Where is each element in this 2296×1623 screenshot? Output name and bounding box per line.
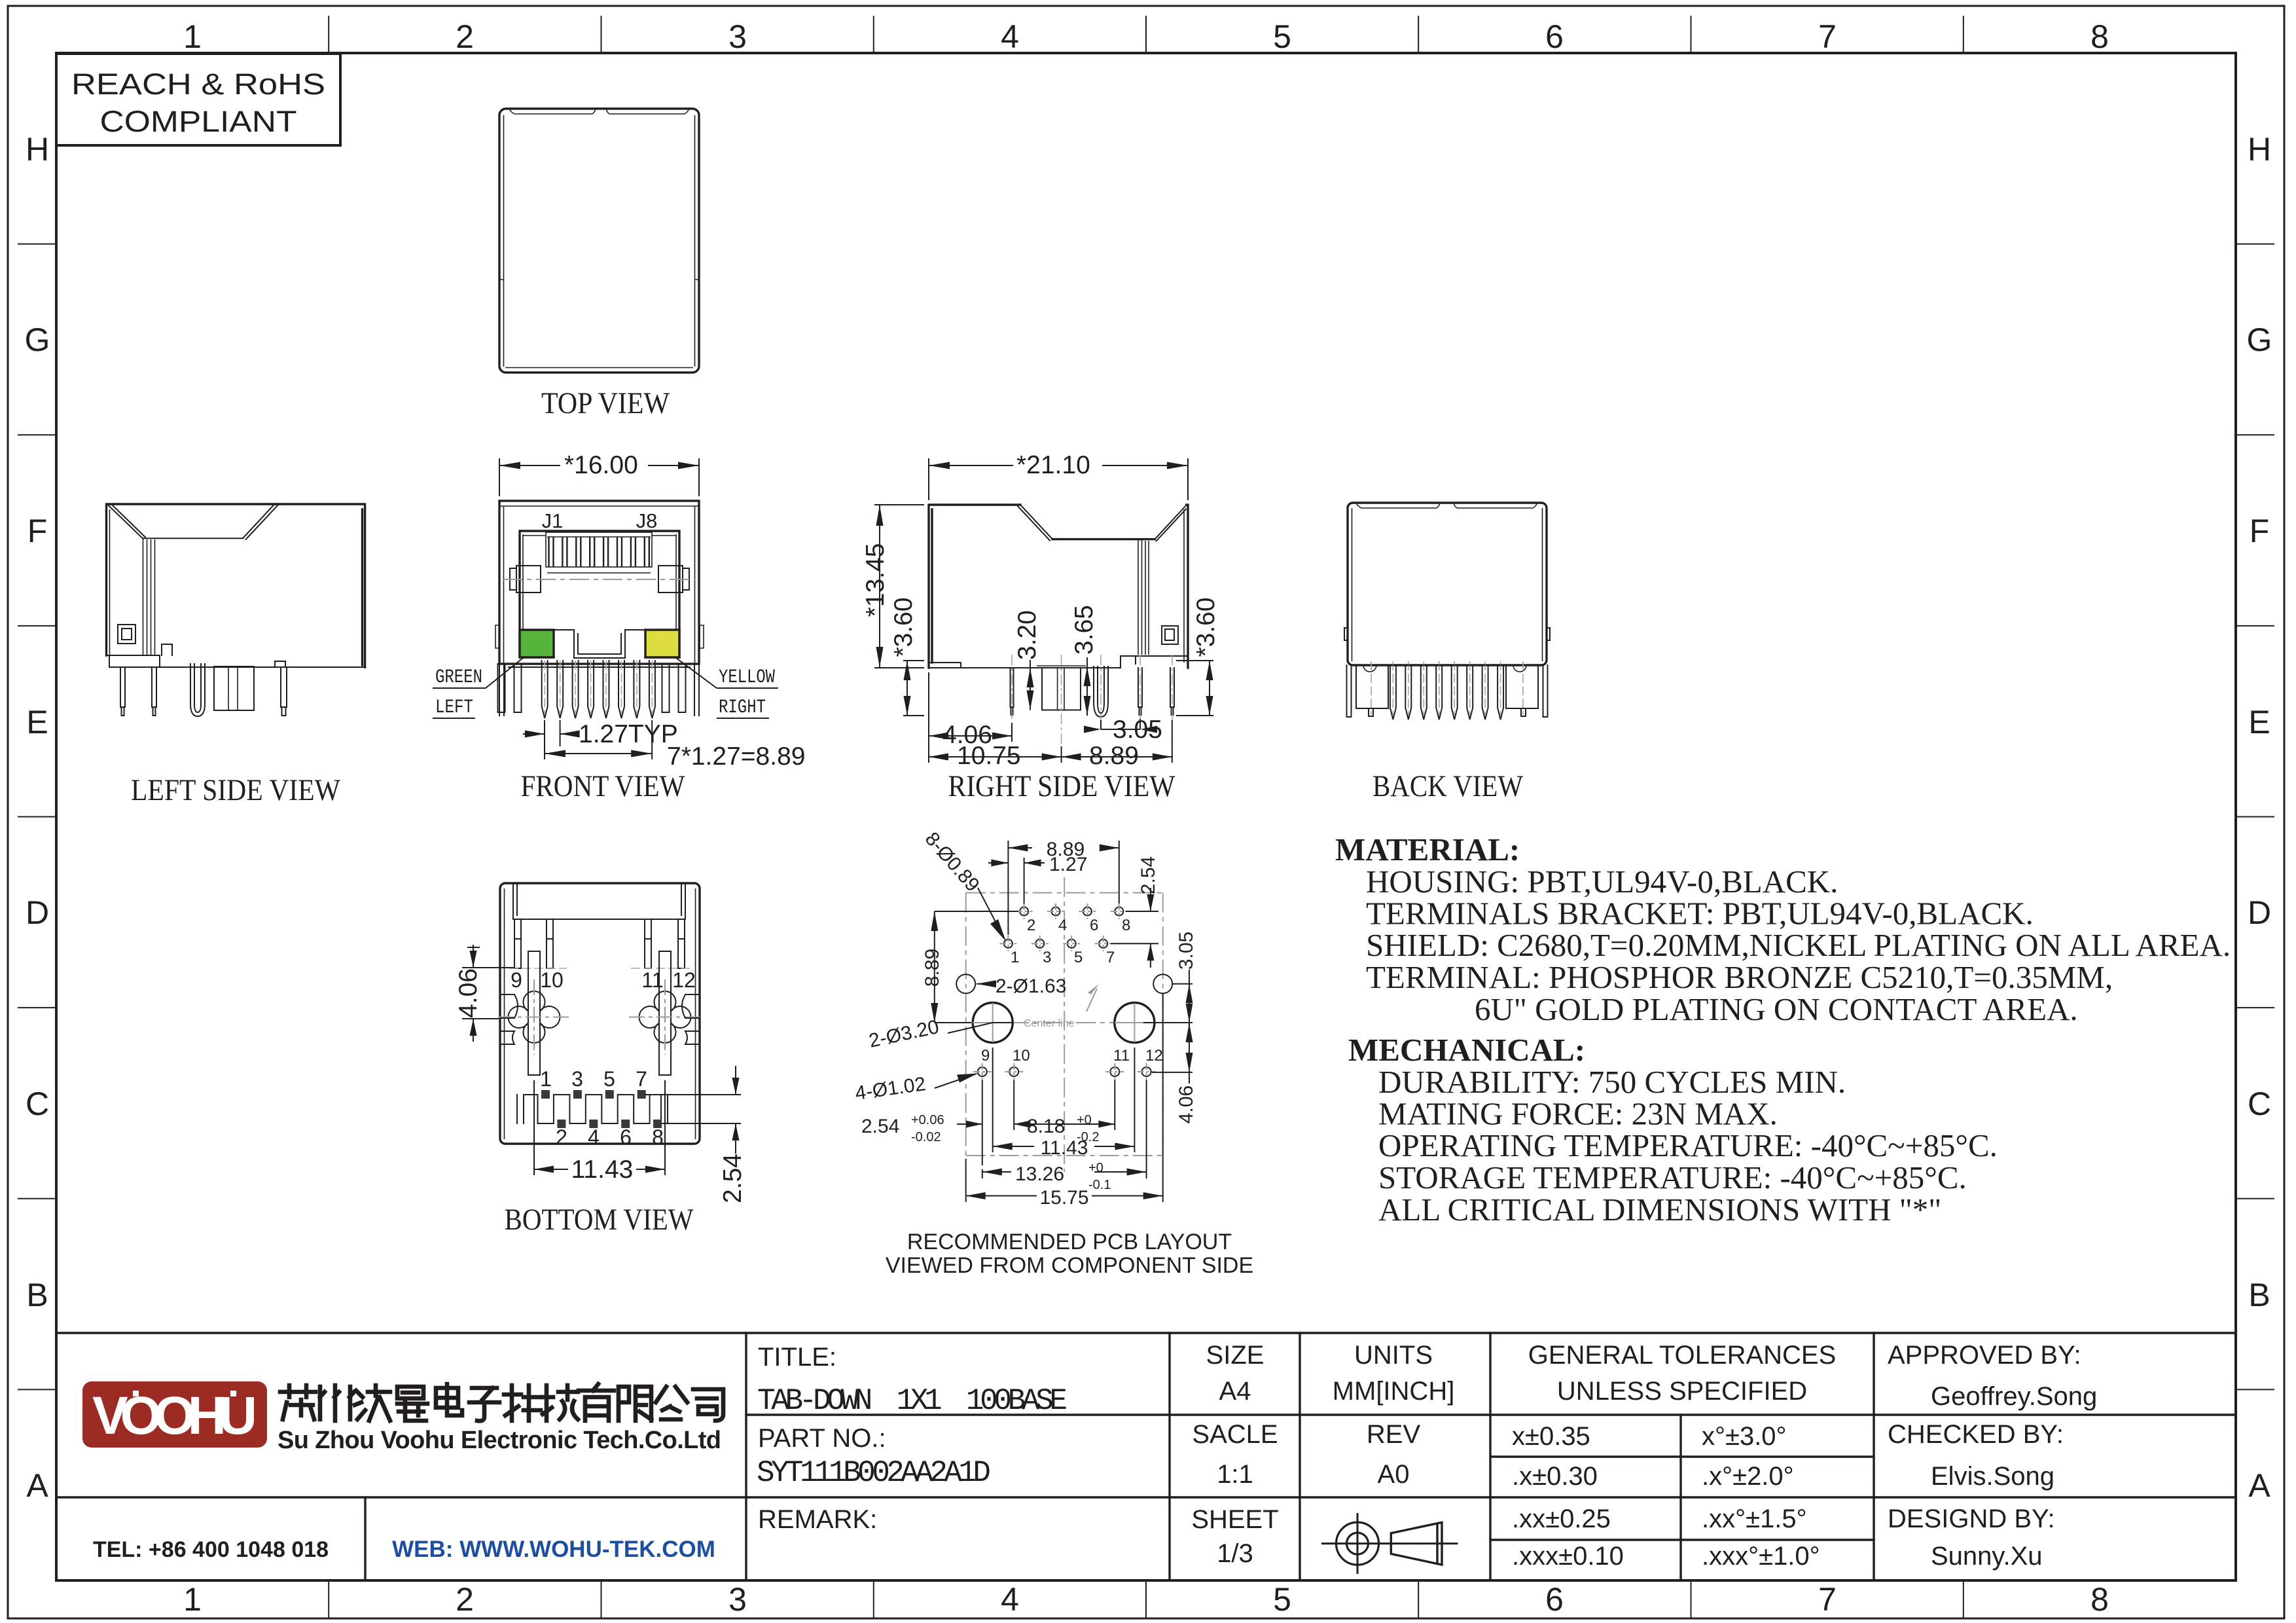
svg-text:3: 3 [728,18,747,55]
svg-text:*13.45: *13.45 [861,543,889,617]
svg-text:11.43: 11.43 [1041,1137,1088,1159]
svg-text:SYT111B002AA2A1D: SYT111B002AA2A1D [757,1456,991,1490]
svg-text:G: G [25,321,50,358]
svg-text:1: 1 [183,18,202,55]
svg-text:UNITS: UNITS [1354,1341,1433,1370]
svg-text:3.05: 3.05 [1113,716,1162,744]
svg-text:10: 10 [540,968,564,992]
svg-text:REV: REV [1367,1420,1421,1449]
svg-text:x°±3.0°: x°±3.0° [1702,1422,1787,1451]
svg-text:1: 1 [183,1581,202,1618]
svg-text:H: H [2248,131,2271,168]
svg-text:2: 2 [556,1125,567,1149]
svg-text:8: 8 [652,1125,664,1149]
svg-text:Su Zhou Voohu Electronic Tech.: Su Zhou Voohu Electronic Tech.Co.Ltd [278,1427,721,1454]
svg-text:9: 9 [511,968,522,992]
svg-text:A4: A4 [1219,1377,1251,1406]
svg-text:BOTTOM VIEW: BOTTOM VIEW [505,1203,694,1237]
svg-text:D: D [2248,894,2271,931]
svg-text:8.89: 8.89 [1089,742,1139,770]
svg-text:.xx°±1.5°: .xx°±1.5° [1702,1504,1807,1533]
svg-text:A: A [2248,1467,2270,1504]
svg-text:12: 12 [1145,1047,1163,1065]
svg-text:H: H [26,131,49,168]
svg-text:J8: J8 [636,509,658,532]
svg-text:2-Ø1.63: 2-Ø1.63 [996,976,1066,997]
svg-text:RIGHT SIDE VIEW: RIGHT SIDE VIEW [948,769,1176,803]
svg-text:4: 4 [1001,18,1019,55]
svg-text:10: 10 [1013,1047,1030,1065]
svg-text:VIEWED FROM COMPONENT SIDE: VIEWED FROM COMPONENT SIDE [886,1253,1253,1278]
svg-text:UNLESS SPECIFIED: UNLESS SPECIFIED [1557,1377,1807,1406]
svg-text:E: E [2248,704,2270,740]
svg-text:5: 5 [1074,949,1083,966]
svg-text:9: 9 [981,1047,990,1065]
svg-text:2.54: 2.54 [861,1116,899,1137]
svg-text:Geoffrey.Song: Geoffrey.Song [1931,1382,2097,1411]
svg-text:C: C [2248,1085,2271,1122]
svg-text:1: 1 [1011,949,1019,966]
svg-text:5: 5 [1273,1581,1291,1618]
svg-text:13.26: 13.26 [1015,1163,1064,1185]
svg-text:1.27TYP: 1.27TYP [579,720,678,748]
svg-text:MM[INCH]: MM[INCH] [1333,1377,1455,1406]
svg-text:6U" GOLD PLATING ON CONTACT AR: 6U" GOLD PLATING ON CONTACT AREA. [1475,991,2078,1027]
svg-text:5: 5 [603,1067,615,1091]
svg-text:1: 1 [540,1067,552,1091]
svg-text:COMPLIANT: COMPLIANT [100,105,297,138]
svg-text:Sunny.Xu: Sunny.Xu [1931,1542,2043,1571]
svg-text:G: G [2247,321,2272,358]
svg-text:-0.1: -0.1 [1088,1178,1111,1192]
svg-text:J1: J1 [542,509,564,532]
svg-text:TOP VIEW: TOP VIEW [541,386,670,420]
svg-text:TEL: +86 400 1048 018: TEL: +86 400 1048 018 [93,1537,329,1562]
svg-text:6: 6 [620,1125,632,1149]
svg-text:WEB: WWW.WOHU-TEK.COM: WEB: WWW.WOHU-TEK.COM [392,1537,715,1562]
svg-text:7: 7 [1106,949,1115,966]
svg-text:7: 7 [1818,18,1837,55]
svg-text:3.05: 3.05 [1175,932,1197,970]
svg-text:2.54: 2.54 [719,1154,747,1203]
svg-text:2: 2 [456,1581,474,1618]
svg-text:.xxx±0.10: .xxx±0.10 [1512,1542,1624,1571]
svg-text:7*1.27=8.89: 7*1.27=8.89 [667,742,805,771]
svg-text:5: 5 [1273,18,1291,55]
svg-text:4: 4 [588,1125,600,1149]
svg-text:4.06: 4.06 [1175,1085,1197,1123]
svg-text:.xx±0.25: .xx±0.25 [1512,1504,1611,1533]
svg-text:*16.00: *16.00 [564,451,638,479]
svg-text:TAB-DOWN 1X1 100BASE: TAB-DOWN 1X1 100BASE [757,1384,1067,1418]
svg-text:.x±0.30: .x±0.30 [1512,1462,1598,1491]
svg-text:11.43: 11.43 [571,1156,634,1184]
svg-text:ALL CRITICAL DIMENSIONS WITH ": ALL CRITICAL DIMENSIONS WITH "*" [1378,1192,1941,1228]
svg-text:2.54: 2.54 [1138,856,1159,894]
svg-text:D: D [26,894,49,931]
svg-text:8.89: 8.89 [922,949,943,987]
svg-text:CHECKED BY:: CHECKED BY: [1888,1420,2064,1449]
svg-text:FRONT VIEW: FRONT VIEW [521,769,686,803]
svg-text:MECHANICAL:: MECHANICAL: [1348,1032,1585,1068]
svg-text:DURABILITY: 750 CYCLES MIN.: DURABILITY: 750 CYCLES MIN. [1378,1064,1846,1100]
svg-text:4: 4 [1058,917,1067,934]
svg-text:STORAGE TEMPERATURE: -40°C~+85: STORAGE TEMPERATURE: -40°C~+85°C. [1378,1159,1967,1195]
svg-text:DESIGND BY:: DESIGND BY: [1888,1504,2055,1533]
svg-text:LEFT SIDE VIEW: LEFT SIDE VIEW [131,773,341,807]
svg-text:SIZE: SIZE [1206,1341,1265,1370]
svg-text:PART NO.:: PART NO.: [758,1424,886,1453]
svg-text:1.27: 1.27 [1049,854,1087,875]
svg-text:+0: +0 [1088,1161,1103,1175]
svg-text:APPROVED BY:: APPROVED BY: [1888,1341,2081,1370]
svg-text:HOUSING: PBT,UL94V-0,BLACK.: HOUSING: PBT,UL94V-0,BLACK. [1366,864,1838,900]
svg-text:TERMINALS BRACKET: PBT,UL94V-0: TERMINALS BRACKET: PBT,UL94V-0,BLACK. [1366,896,2034,932]
svg-text:+0.06: +0.06 [911,1113,944,1127]
svg-text:*3.60: *3.60 [1192,597,1220,657]
svg-text:RIGHT: RIGHT [719,697,766,719]
svg-text:x±0.35: x±0.35 [1512,1422,1590,1451]
svg-text:F: F [27,513,48,549]
svg-text:3: 3 [571,1067,583,1091]
svg-text:8: 8 [1122,917,1130,934]
svg-text:YELLOW: YELLOW [719,666,775,689]
svg-text:8: 8 [2090,18,2109,55]
svg-text:*21.10: *21.10 [1016,451,1090,479]
svg-text:3: 3 [1043,949,1051,966]
svg-text:1/3: 1/3 [1217,1539,1253,1568]
svg-text:.xxx°±1.0°: .xxx°±1.0° [1702,1542,1820,1571]
svg-text:SACLE: SACLE [1192,1420,1278,1449]
svg-text:3.65: 3.65 [1070,605,1098,655]
svg-text:+0: +0 [1077,1113,1092,1127]
svg-text:MATING FORCE: 23N MAX.: MATING FORCE: 23N MAX. [1378,1096,1778,1132]
svg-text:7: 7 [636,1067,647,1091]
svg-text:LEFT: LEFT [435,697,473,719]
svg-text:15.75: 15.75 [1039,1187,1088,1209]
svg-text:8: 8 [2090,1581,2109,1618]
svg-text:SHIELD: C2680,T=0.20MM,NICKEL: SHIELD: C2680,T=0.20MM,NICKEL PLATING ON… [1366,927,2231,963]
svg-text:*3.60: *3.60 [889,597,918,657]
svg-text:Elvis.Song: Elvis.Song [1931,1462,2054,1491]
svg-text:3: 3 [728,1581,747,1618]
svg-text:1:1: 1:1 [1217,1460,1253,1489]
svg-text:GENERAL TOLERANCES: GENERAL TOLERANCES [1528,1341,1837,1370]
svg-text:A: A [26,1467,48,1504]
svg-text:12: 12 [672,968,696,992]
svg-text:2: 2 [1027,917,1035,934]
svg-text:TERMINAL: PHOSPHOR BRONZE C521: TERMINAL: PHOSPHOR BRONZE C5210,T=0.35MM… [1366,959,2113,995]
svg-text:REACH & RoHS: REACH & RoHS [71,67,325,101]
svg-text:REMARK:: REMARK: [758,1505,877,1534]
svg-text:4.06: 4.06 [454,968,482,1018]
svg-text:.x°±2.0°: .x°±2.0° [1702,1462,1794,1491]
svg-text:6: 6 [1090,917,1098,934]
svg-text:Center line: Center line [1024,1018,1074,1029]
svg-text:10.75: 10.75 [957,742,1021,770]
svg-text:7: 7 [1818,1581,1837,1618]
svg-text:BACK VIEW: BACK VIEW [1372,769,1524,803]
svg-text:11: 11 [1113,1047,1130,1065]
svg-text:6: 6 [1545,1581,1564,1618]
svg-text:MATERIAL:: MATERIAL: [1335,831,1520,867]
svg-text:TITLE:: TITLE: [758,1343,836,1372]
svg-text:C: C [26,1085,49,1122]
svg-text:B: B [2248,1277,2270,1313]
svg-text:E: E [26,704,48,740]
svg-text:SHEET: SHEET [1191,1505,1278,1534]
svg-text:2: 2 [456,18,474,55]
svg-text:GREEN: GREEN [435,666,482,689]
svg-text:8.18: 8.18 [1027,1116,1065,1137]
svg-text:3.20: 3.20 [1013,610,1041,660]
svg-text:-0.02: -0.02 [911,1130,941,1144]
svg-text:11: 11 [641,968,663,992]
svg-text:OPERATING TEMPERATURE: -40°C~+: OPERATING TEMPERATURE: -40°C~+85°C. [1378,1127,1998,1163]
svg-text:4: 4 [1001,1581,1019,1618]
svg-text:A0: A0 [1378,1460,1410,1489]
svg-text:RECOMMENDED PCB LAYOUT: RECOMMENDED PCB LAYOUT [907,1230,1232,1254]
svg-text:B: B [26,1277,48,1313]
svg-text:6: 6 [1545,18,1564,55]
svg-text:F: F [2250,513,2270,549]
